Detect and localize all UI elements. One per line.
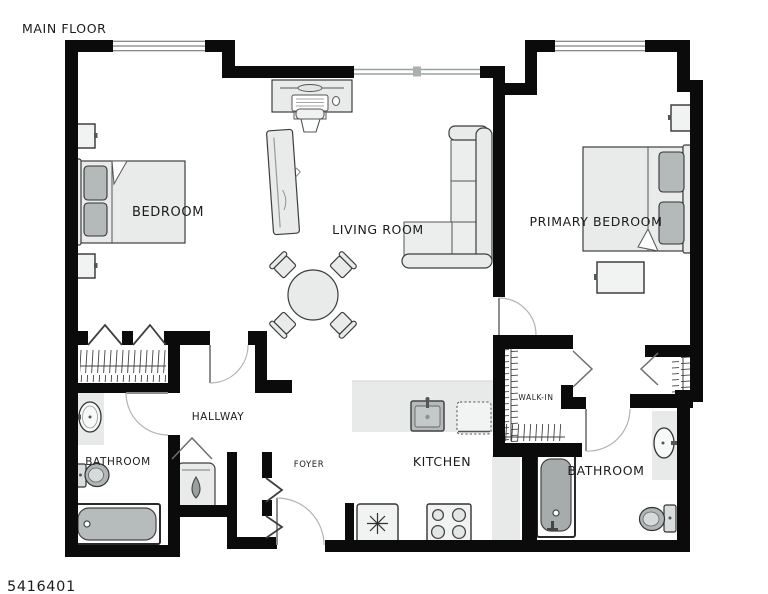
exterior-walls: [65, 40, 703, 557]
window-icon: [555, 40, 645, 52]
dishwasher: [457, 402, 491, 434]
dining-chair-icon: [269, 310, 298, 339]
stove-burners-icon: [427, 504, 471, 543]
door-swing-icon: [126, 393, 168, 435]
pillow-icon: [84, 203, 107, 236]
room-label-bathroom-main: BATHROOM: [85, 456, 151, 468]
room-label-primary-bedroom: PRIMARY BEDROOM: [530, 214, 663, 229]
mouse-icon: [333, 97, 340, 106]
kitchen-sink-icon: [411, 397, 444, 431]
dining-chair-icon: [328, 251, 357, 280]
refrigerator-snowflake-icon: [357, 504, 398, 543]
desk-icon: [272, 80, 352, 112]
dining-table: [269, 251, 358, 340]
room-label-walk-in: WALK-IN: [518, 393, 553, 402]
toilet-icon: [640, 505, 677, 532]
bathtub-icon: [70, 504, 160, 544]
room-label-bedroom: BEDROOM: [132, 205, 204, 220]
pillow-icon: [659, 152, 684, 192]
closet-rod-hatch-icon: [80, 350, 166, 382]
plan-number: 5416401: [7, 579, 76, 594]
dining-chair-icon: [328, 310, 357, 339]
entry-door-swing-icon: [277, 498, 324, 545]
room-label-hallway: HALLWAY: [192, 411, 245, 423]
primary-bed: [583, 145, 691, 253]
water-heater-drop-icon: [177, 463, 215, 510]
tv-console-icon: [266, 129, 304, 235]
pillow-icon: [84, 166, 107, 200]
window-icon: [113, 40, 205, 52]
door-swing-icon: [586, 409, 630, 451]
pillow-icon: [659, 202, 684, 244]
floor-plan-canvas: MAIN FLOOR BEDROOM LIVING ROOM PRIMARY B…: [0, 0, 768, 594]
dining-chair-icon: [269, 251, 298, 280]
door-swing-icon: [210, 345, 248, 383]
dining-table-icon: [288, 270, 338, 320]
office-chair-icon: [294, 109, 326, 132]
bed: [73, 159, 185, 245]
floor-title: MAIN FLOOR: [22, 21, 106, 36]
sectional-sofa-icon: [402, 126, 492, 268]
room-label-kitchen: KITCHEN: [413, 454, 471, 469]
room-label-bathroom-primary: BATHROOM: [567, 463, 644, 478]
room-label-living-room: LIVING ROOM: [332, 222, 424, 237]
primary-closet-rod-hatch-icon: [672, 357, 690, 394]
door-swing-icon: [499, 298, 536, 335]
window-icon: [354, 67, 480, 77]
room-label-foyer: FOYER: [294, 460, 325, 470]
